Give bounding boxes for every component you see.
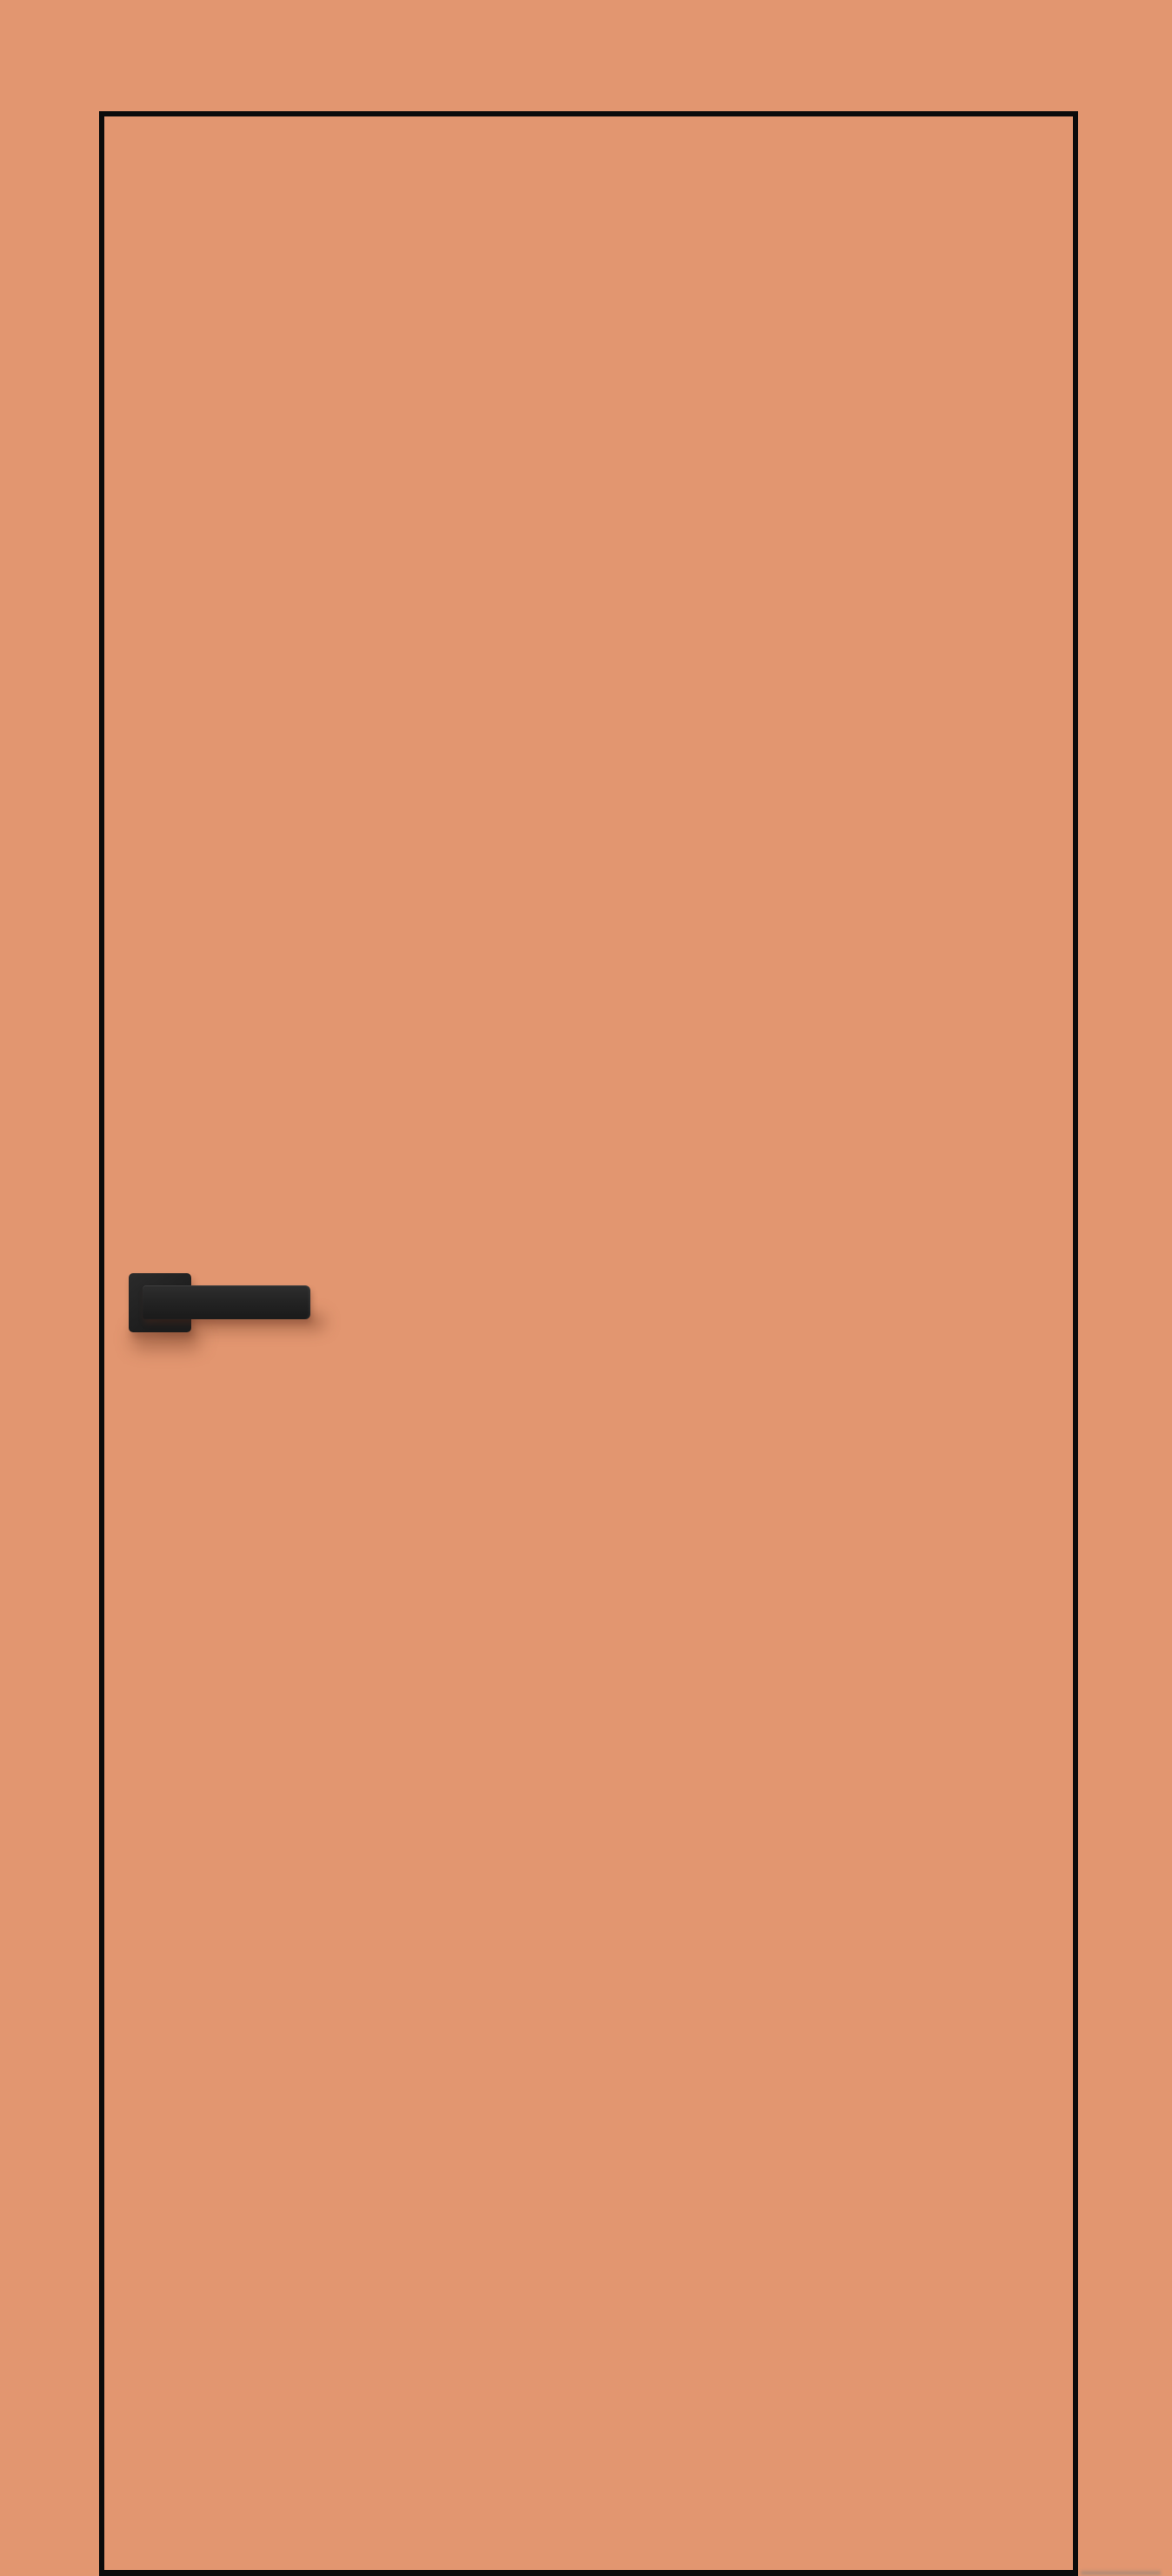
door-product-image [0, 0, 1172, 2576]
handle-lever [143, 1285, 310, 1319]
door-leaf-outline [99, 111, 1078, 2576]
bottom-right-artifact [1081, 2571, 1161, 2575]
